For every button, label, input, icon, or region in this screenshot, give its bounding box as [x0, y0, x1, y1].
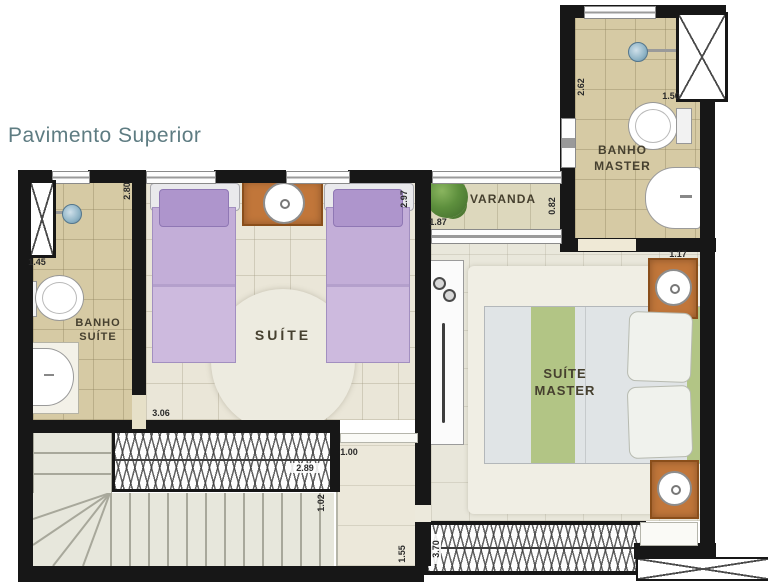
lamp-icon [263, 182, 305, 224]
dimension-label: 3.70 [431, 534, 441, 564]
shower-head-icon [62, 204, 82, 224]
dimension-label: 2.62 [576, 72, 586, 102]
wall [18, 566, 424, 582]
pillow [159, 189, 229, 227]
wall [214, 170, 286, 183]
wall [415, 520, 431, 566]
stairs-winder-lines [33, 493, 110, 566]
balcony-railing [432, 171, 562, 184]
door-suite [340, 433, 418, 443]
door-banho-suite [132, 395, 146, 429]
room-label-line: MASTER [594, 159, 651, 173]
wall [18, 420, 340, 433]
room-label-line: BANHO [75, 317, 120, 329]
window-sill [640, 522, 698, 546]
door-suite-master [415, 505, 431, 522]
wall [88, 170, 146, 183]
single-bed-left [150, 183, 238, 363]
master-window-rail [428, 547, 642, 549]
varanda-window [431, 229, 562, 244]
door-banho-master [578, 239, 636, 251]
dimension-label: 1.00 [334, 447, 364, 457]
dimension-label: 0.82 [547, 191, 557, 221]
stair-railing [112, 428, 340, 492]
pillow [627, 311, 693, 383]
pillow [333, 189, 403, 227]
floor-plan: Pavimento Superior [0, 0, 768, 582]
pillow [627, 385, 693, 459]
shower-arm [645, 49, 678, 52]
exterior-ledge [636, 557, 768, 581]
stairs-run [110, 493, 334, 566]
mattress [152, 207, 236, 363]
room-label-line: BANHO [598, 143, 647, 157]
wardrobe-knob [433, 277, 446, 290]
stair-railing-rail [115, 459, 337, 461]
dimension-label: 2.89 [290, 463, 320, 473]
room-label-suite-master: SUÍTE MASTER [515, 366, 615, 400]
window [584, 6, 656, 19]
lamp-icon [657, 471, 692, 506]
window [52, 171, 90, 184]
wall [132, 183, 146, 395]
dimension-label: 1.45 [22, 257, 52, 267]
dimension-label: 3.06 [146, 408, 176, 418]
dimension-label: 2.80 [122, 176, 132, 206]
window [286, 171, 350, 184]
wall [700, 85, 715, 559]
wardrobe-handle [442, 323, 445, 423]
shower-stall [28, 180, 56, 258]
hall-stairs-divider [336, 490, 338, 566]
master-window [424, 521, 646, 575]
shower-stall-master [676, 12, 728, 102]
wardrobe-knob [443, 289, 456, 302]
wardrobe-icon [428, 260, 464, 445]
room-label-line: MASTER [535, 383, 596, 398]
room-label-suite: SUÍTE [238, 326, 328, 344]
room-label-line: SUÍTE [79, 331, 116, 343]
dimension-label: 1.02 [316, 488, 326, 518]
dimension-label: 1.17 [663, 249, 693, 259]
dimension-label: 2.97 [399, 184, 409, 214]
window [146, 171, 216, 184]
dimension-label: 1.55 [397, 539, 407, 569]
lamp-icon [655, 269, 692, 306]
toilet-tank [676, 108, 692, 144]
stairs-winder [33, 493, 110, 566]
room-label-banho-master: BANHO MASTER [570, 143, 675, 174]
dimension-label: 1.50 [656, 91, 686, 101]
wall [330, 428, 340, 490]
room-label-banho-suite: BANHO SUÍTE [52, 316, 144, 345]
sink-icon [645, 167, 701, 229]
page-title: Pavimento Superior [8, 124, 201, 148]
room-label-varanda: VARANDA [462, 192, 544, 208]
toilet-bowl [35, 275, 84, 321]
shower-head-icon [628, 42, 648, 62]
room-label-line: SUÍTE [543, 366, 586, 381]
dimension-label: 1.87 [423, 217, 453, 227]
mattress [326, 207, 410, 363]
stairs-landing [33, 430, 112, 494]
